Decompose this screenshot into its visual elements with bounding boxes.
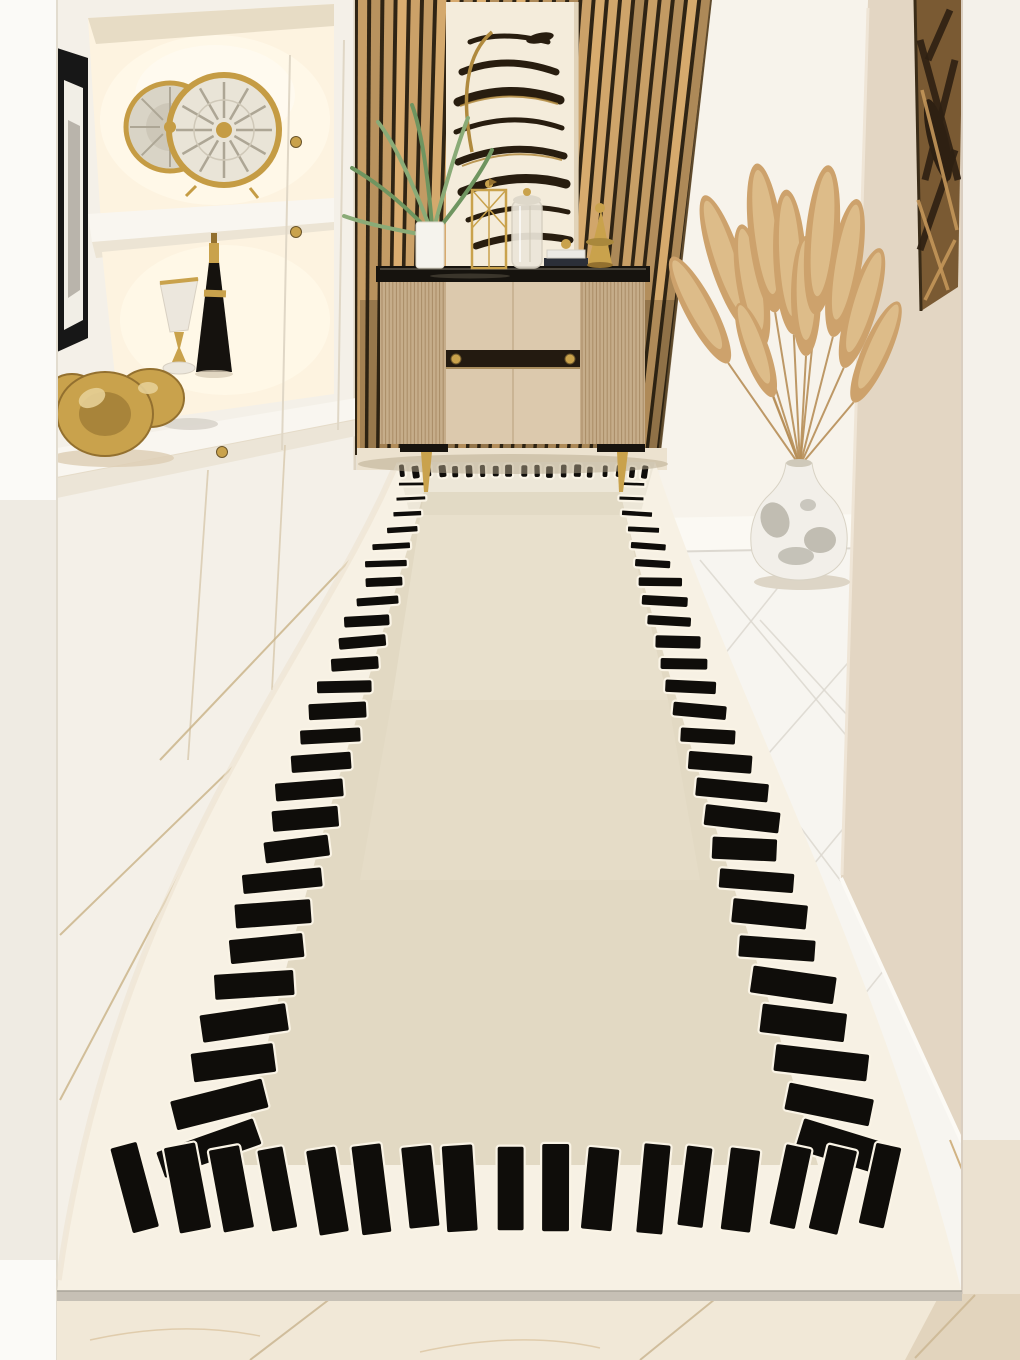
glass-canister xyxy=(512,188,542,268)
right-edge-strip xyxy=(962,0,1020,1360)
right-wall-art xyxy=(915,0,963,311)
scene-canvas xyxy=(0,0,1020,1360)
framed-art-slice xyxy=(57,48,88,352)
hallway-rug-photo xyxy=(0,0,1020,1360)
left-edge-strip xyxy=(0,0,57,1360)
bottom-floor xyxy=(57,1294,1020,1360)
